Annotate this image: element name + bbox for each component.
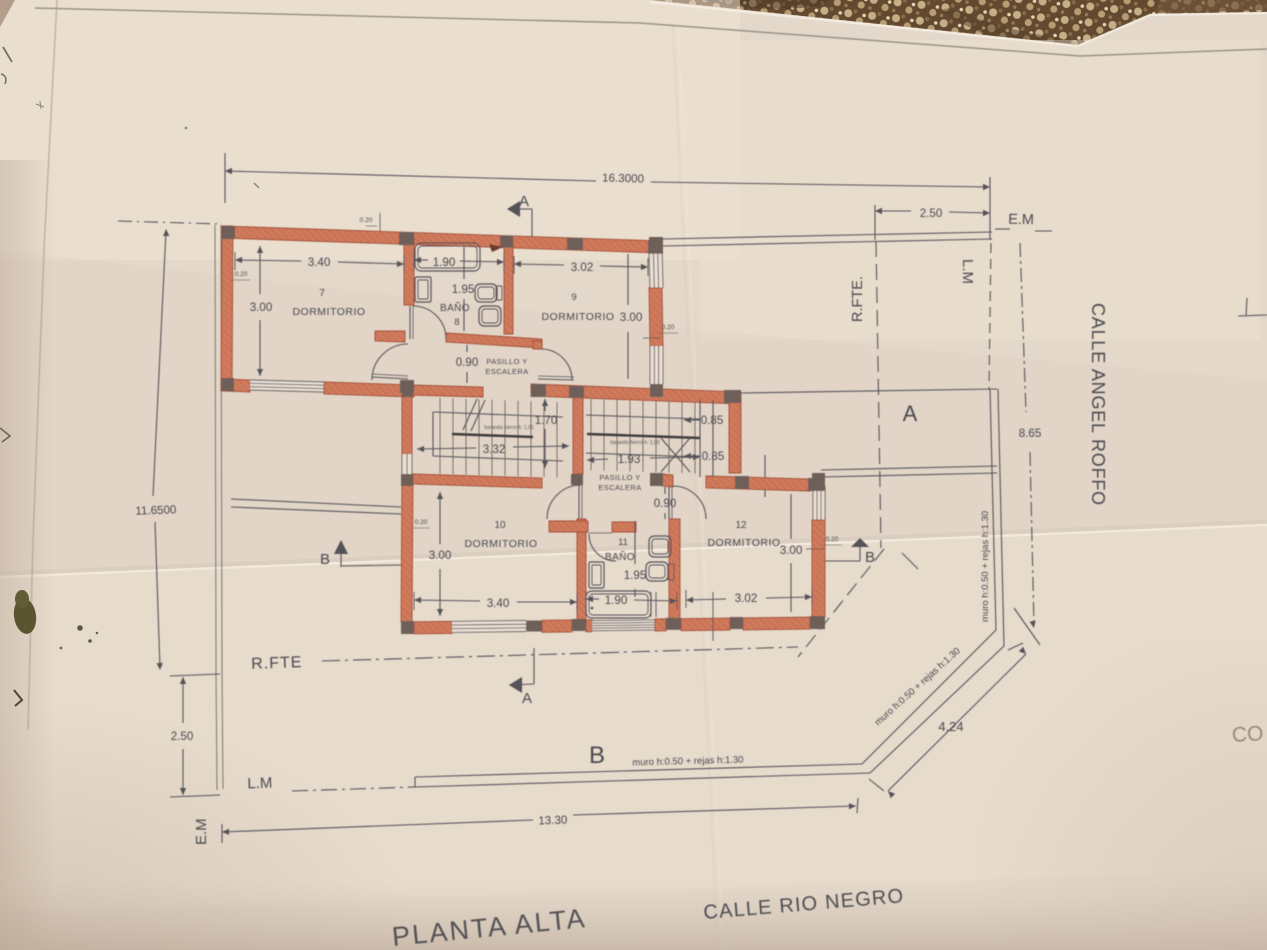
svg-text:3.02: 3.02 <box>571 261 594 274</box>
svg-text:11.6500: 11.6500 <box>135 503 176 517</box>
svg-text:3.00: 3.00 <box>780 544 803 557</box>
svg-text:R.FTE.: R.FTE. <box>850 276 866 322</box>
svg-text:DORMITORIO: DORMITORIO <box>464 538 537 550</box>
svg-text:3.00: 3.00 <box>620 311 643 324</box>
svg-text:DORMITORIO: DORMITORIO <box>541 311 614 323</box>
svg-text:muro h:0.50 + rejas h:1.30: muro h:0.50 + rejas h:1.30 <box>980 511 991 622</box>
svg-text:0.20: 0.20 <box>415 519 428 526</box>
svg-text:3.00: 3.00 <box>250 301 273 314</box>
svg-text:L.M: L.M <box>247 775 273 793</box>
svg-text:CO: CO <box>1231 722 1264 747</box>
svg-text:8: 8 <box>454 317 459 328</box>
svg-text:A: A <box>519 193 529 210</box>
svg-text:10: 10 <box>494 520 506 531</box>
svg-text:B: B <box>320 551 330 568</box>
svg-text:R.FTE: R.FTE <box>251 654 303 673</box>
svg-text:BAÑO: BAÑO <box>605 550 635 563</box>
svg-text:12: 12 <box>735 520 747 531</box>
svg-text:16.3000: 16.3000 <box>602 171 644 185</box>
svg-text:0.20: 0.20 <box>826 536 839 543</box>
svg-text:DORMITORIO: DORMITORIO <box>707 537 780 549</box>
svg-text:E.M: E.M <box>193 818 210 845</box>
svg-text:B: B <box>589 742 605 769</box>
svg-text:2.50: 2.50 <box>171 730 194 743</box>
svg-text:baranda hierro h: 1,00: baranda hierro h: 1,00 <box>484 425 533 431</box>
svg-text:0.90: 0.90 <box>456 356 479 369</box>
svg-text:A: A <box>522 690 532 707</box>
svg-text:3.40: 3.40 <box>308 256 331 269</box>
svg-text:0.20: 0.20 <box>662 324 675 331</box>
svg-text:PASILLO Y: PASILLO Y <box>486 357 527 366</box>
svg-text:L.M: L.M <box>959 259 976 284</box>
svg-text:PASILLO Y: PASILLO Y <box>599 473 640 482</box>
svg-text:ESCALERA: ESCALERA <box>598 483 641 492</box>
svg-text:ESCALERA: ESCALERA <box>485 367 528 376</box>
svg-text:1.70: 1.70 <box>535 414 558 427</box>
svg-text:1.93: 1.93 <box>618 453 641 466</box>
svg-text:0.90: 0.90 <box>654 497 677 510</box>
svg-text:11: 11 <box>618 537 628 548</box>
svg-text:3.40: 3.40 <box>487 597 510 610</box>
svg-text:0.20: 0.20 <box>235 271 248 278</box>
svg-text:0.20: 0.20 <box>360 217 373 224</box>
svg-text:baranda hierro h: 1,00: baranda hierro h: 1,00 <box>610 440 659 446</box>
svg-text:0.85: 0.85 <box>702 450 725 463</box>
svg-text:1.90: 1.90 <box>433 256 456 269</box>
svg-text:1.90: 1.90 <box>605 594 628 607</box>
svg-text:3.02: 3.02 <box>735 592 758 605</box>
svg-text:4.24: 4.24 <box>938 719 963 734</box>
svg-text:CALLE ANGEL ROFFO: CALLE ANGEL ROFFO <box>1088 303 1108 506</box>
svg-text:3.00: 3.00 <box>429 549 452 562</box>
svg-text:1.95: 1.95 <box>624 569 647 582</box>
svg-text:7: 7 <box>319 288 325 299</box>
svg-text:B: B <box>865 549 875 566</box>
svg-text:2.50: 2.50 <box>920 207 943 220</box>
svg-text:A: A <box>903 401 918 426</box>
svg-text:E.M: E.M <box>1008 212 1034 228</box>
svg-text:BAÑO: BAÑO <box>440 301 470 314</box>
svg-text:0.85: 0.85 <box>701 414 724 427</box>
svg-text:3.32: 3.32 <box>483 443 506 456</box>
svg-text:DORMITORIO: DORMITORIO <box>292 306 365 318</box>
svg-text:1.95: 1.95 <box>452 283 475 296</box>
svg-text:9: 9 <box>571 292 576 303</box>
svg-text:13.30: 13.30 <box>538 813 567 827</box>
svg-text:8.65: 8.65 <box>1019 427 1042 440</box>
